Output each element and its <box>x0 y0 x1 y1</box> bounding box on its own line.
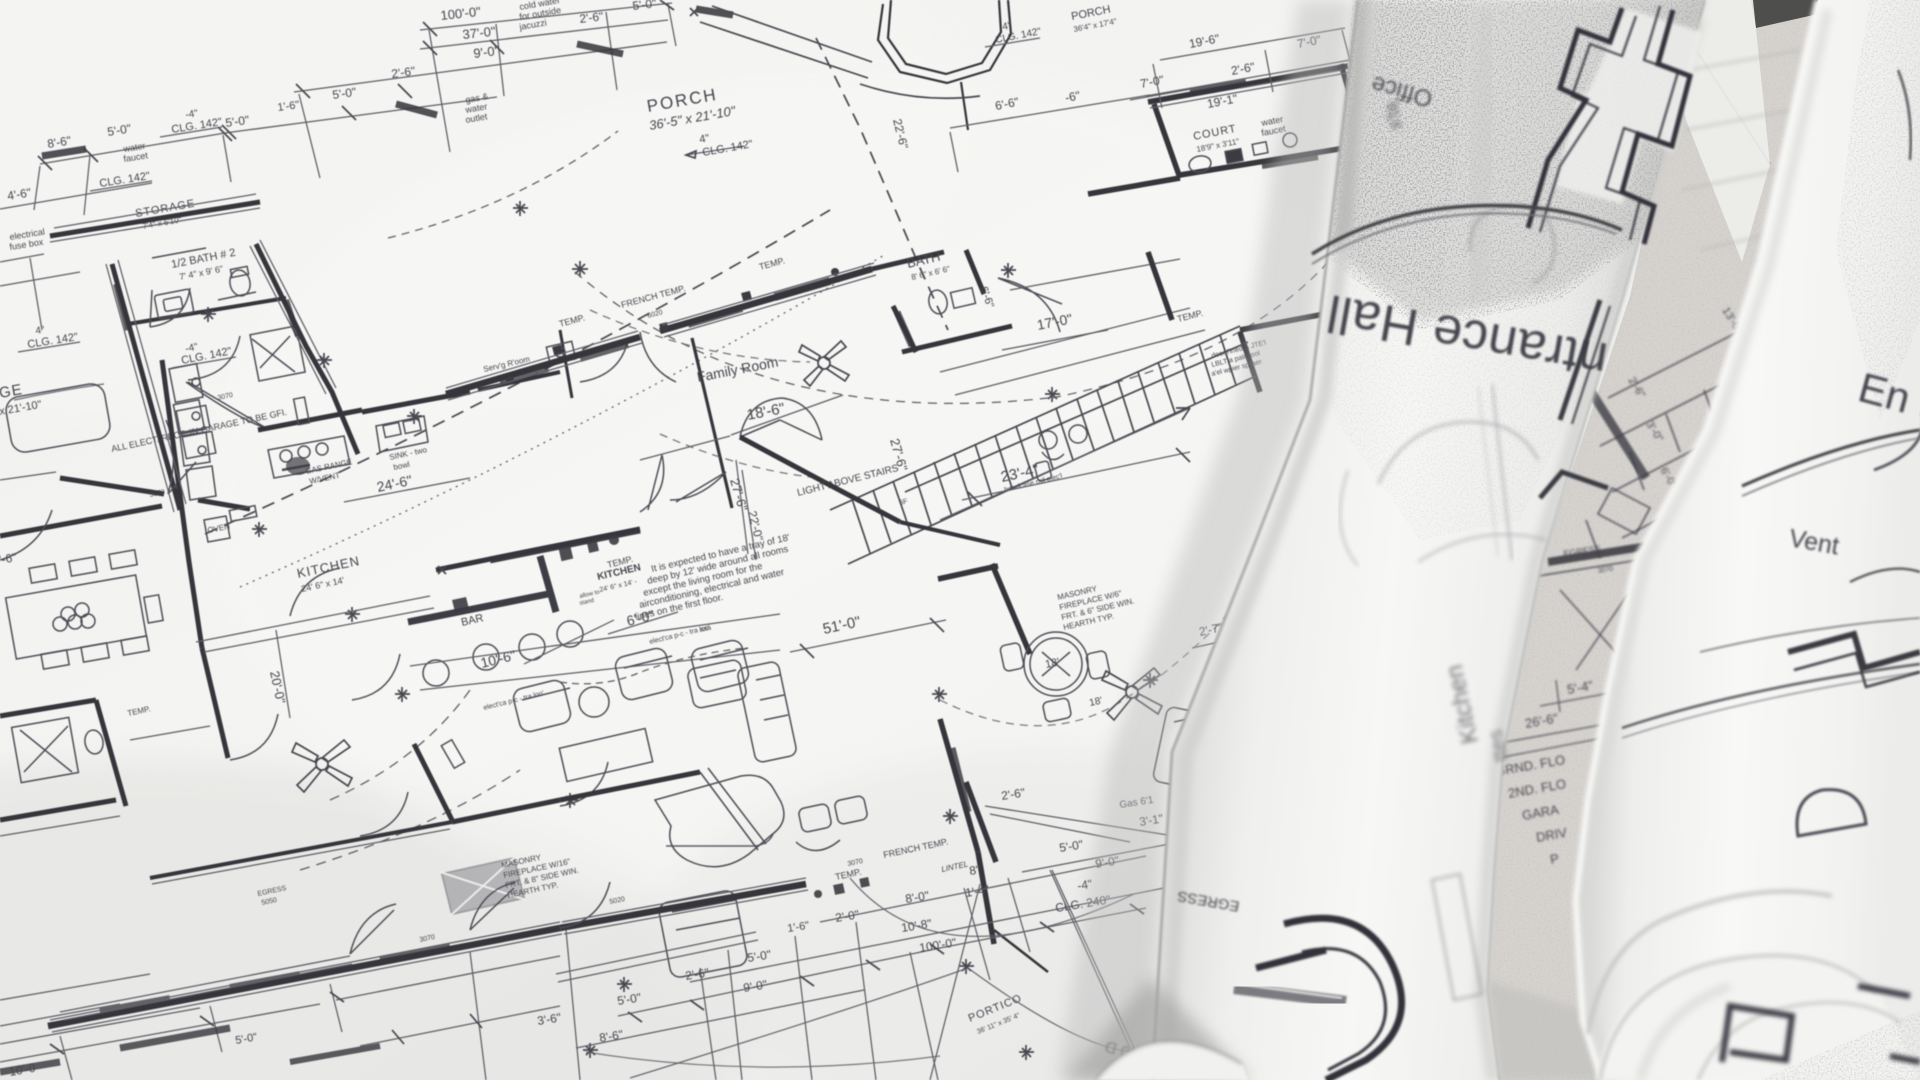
svg-text:-6": -6" <box>1064 88 1081 105</box>
svg-text:-4": -4" <box>185 108 199 121</box>
svg-text:2'-6": 2'-6" <box>579 9 604 26</box>
svg-text:8": 8" <box>968 862 981 878</box>
svg-text:9'-0": 9'-0" <box>473 43 501 61</box>
